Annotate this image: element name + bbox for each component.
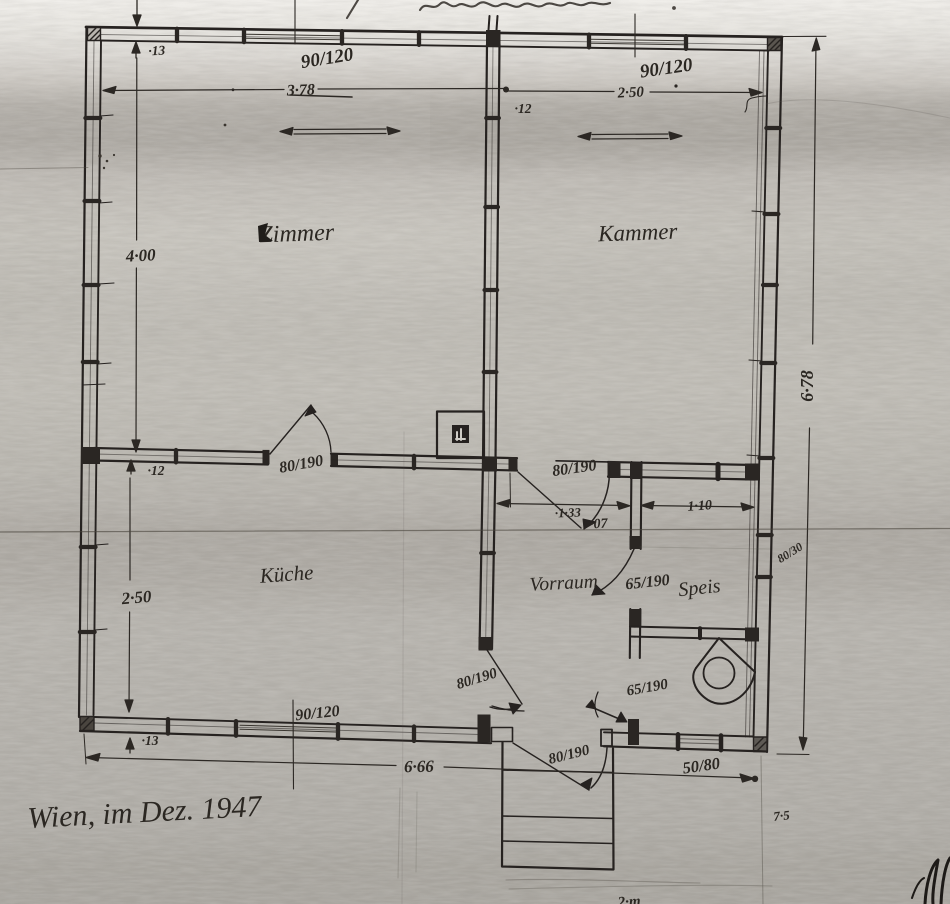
svg-text:·12: ·12 (148, 463, 165, 478)
svg-text:2·50: 2·50 (616, 84, 645, 101)
svg-text:Kammer: Kammer (597, 219, 679, 247)
svg-text:3·78: 3·78 (286, 82, 316, 100)
svg-text:7·5: 7·5 (773, 807, 791, 824)
svg-text:Speis: Speis (677, 575, 722, 601)
svg-text:·1·33: ·1·33 (555, 505, 582, 521)
svg-text:Vorraum: Vorraum (529, 571, 598, 596)
svg-text:·12: ·12 (515, 101, 532, 116)
svg-text:2·m: 2·m (616, 893, 641, 904)
svg-text:·13: ·13 (142, 733, 159, 748)
svg-text:6·66: 6·66 (404, 757, 435, 777)
svg-text:1·10: 1·10 (687, 498, 712, 515)
svg-text:Zimmer: Zimmer (259, 220, 335, 249)
svg-text:Küche: Küche (258, 560, 314, 588)
svg-text:4·00: 4·00 (124, 245, 156, 266)
svg-text:2·50: 2·50 (120, 587, 153, 609)
svg-text:·13: ·13 (148, 43, 166, 59)
svg-text:6·78: 6·78 (797, 370, 817, 402)
